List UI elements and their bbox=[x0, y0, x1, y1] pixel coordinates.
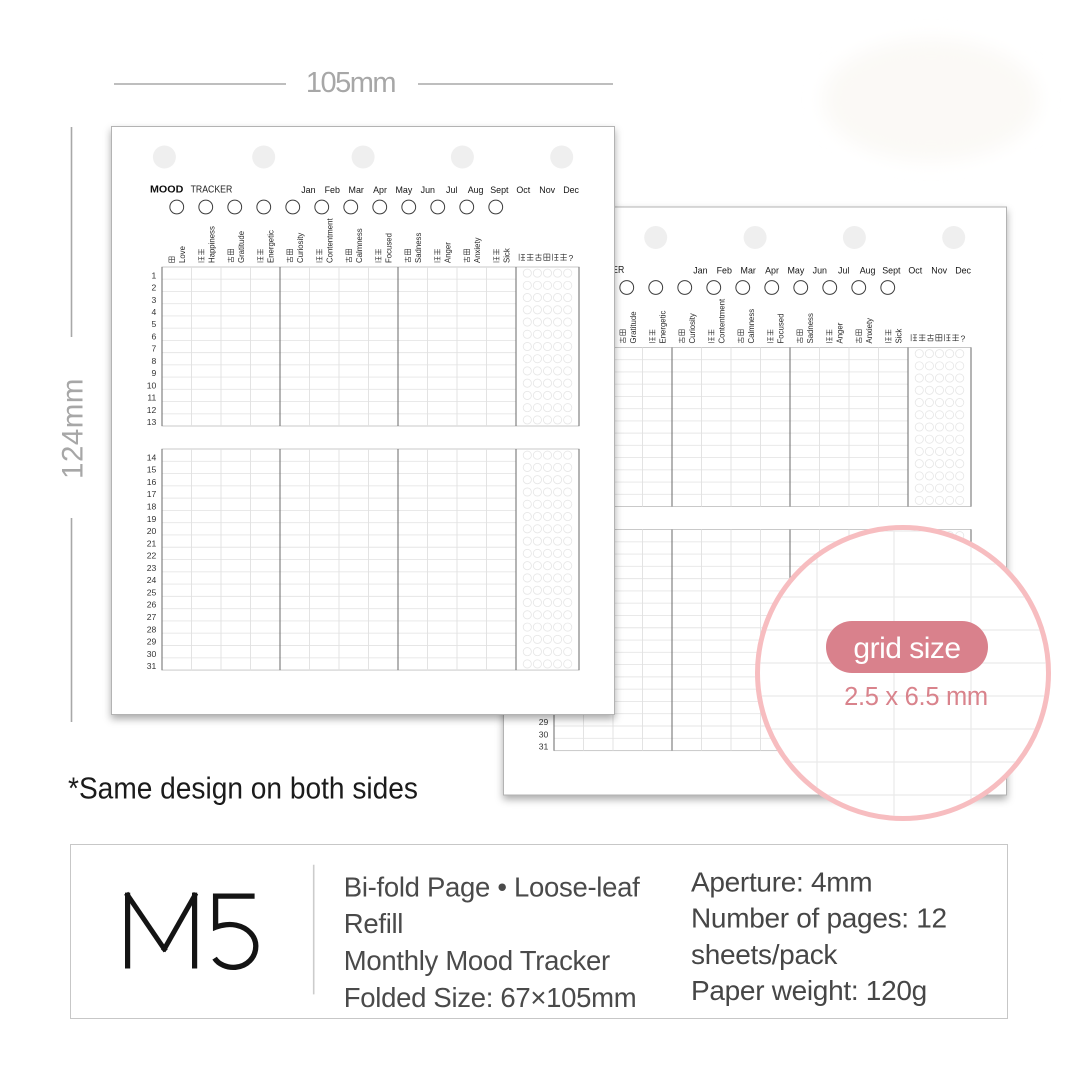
svg-text:Aperture: 4mm: Aperture: 4mm bbox=[691, 866, 872, 897]
svg-text:Bi-fold Page • Loose-leaf: Bi-fold Page • Loose-leaf bbox=[344, 871, 640, 902]
svg-text:124mm: 124mm bbox=[57, 378, 90, 479]
svg-text:grid size: grid size bbox=[853, 632, 960, 665]
svg-text:Folded Size: 67×105mm: Folded Size: 67×105mm bbox=[344, 982, 637, 1013]
svg-text:Refill: Refill bbox=[344, 908, 403, 939]
svg-text:2.5 x 6.5 mm: 2.5 x 6.5 mm bbox=[844, 683, 988, 711]
svg-text:*Same design on both sides: *Same design on both sides bbox=[68, 771, 418, 806]
svg-text:105mm: 105mm bbox=[306, 67, 396, 99]
svg-text:Monthly Mood Tracker: Monthly Mood Tracker bbox=[344, 945, 610, 976]
svg-text:Paper weight: 120g: Paper weight: 120g bbox=[691, 975, 927, 1006]
svg-text:Number of pages: 12: Number of pages: 12 bbox=[691, 903, 947, 934]
svg-text:sheets/pack: sheets/pack bbox=[691, 939, 838, 970]
